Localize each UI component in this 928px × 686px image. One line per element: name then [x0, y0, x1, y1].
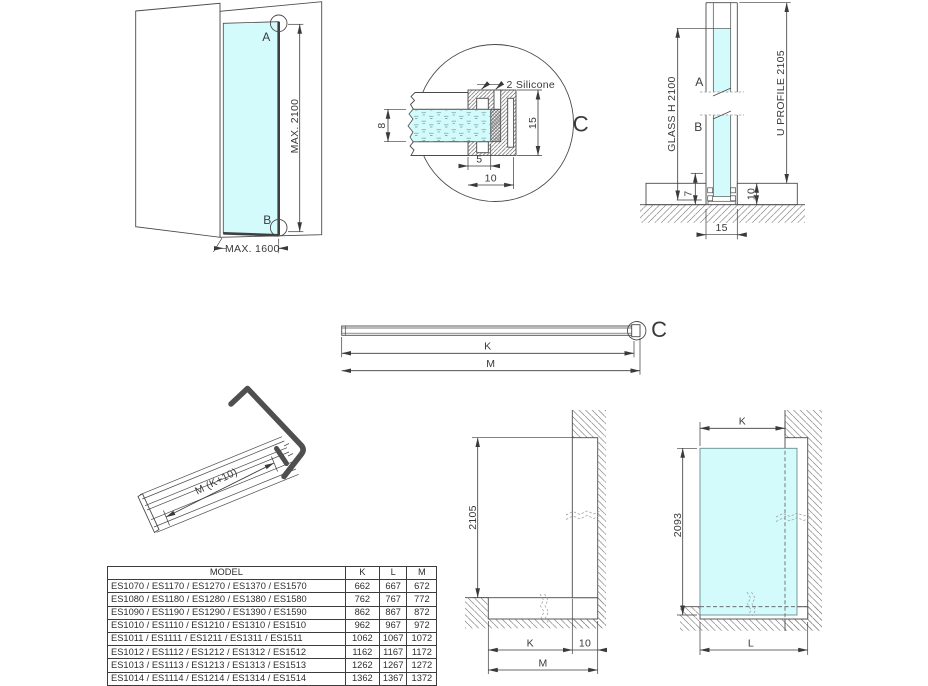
label-a: A	[695, 75, 703, 89]
m-cell: 872	[407, 606, 437, 619]
ext-line	[213, 238, 222, 252]
u-profile-label: U PROFILE 2105	[775, 50, 787, 136]
dim-10: 10	[746, 188, 758, 200]
table-row: ES1070 / ES1170 / ES1270 / ES1370 / ES15…	[108, 580, 437, 593]
dim-7: 7	[683, 190, 695, 196]
m-cell: 972	[407, 619, 437, 632]
detail-c-view: 8 15 5 10 2 Silicone C	[376, 45, 589, 202]
table-header-row: MODEL K L M	[108, 567, 437, 580]
bar-end-block	[632, 325, 640, 337]
k-cell: 662	[345, 580, 379, 593]
tempered-glass-marks	[408, 109, 491, 141]
table-row: ES1013 / ES1113 / ES1213 / ES1313 / ES15…	[108, 659, 437, 672]
dim-height: 2093	[672, 513, 684, 538]
floor-profile	[488, 598, 597, 619]
gasket	[731, 196, 736, 201]
k-cell: 962	[345, 619, 379, 632]
detail-letter: C	[651, 317, 667, 342]
dim-l: L	[748, 638, 754, 650]
model-cell: ES1090 / ES1190 / ES1290 / ES1390 / ES15…	[108, 606, 346, 619]
dim-inset: 5	[476, 154, 482, 166]
k-cell: 1062	[345, 632, 379, 645]
l-cell: 1367	[379, 672, 406, 685]
dim-m: M	[538, 658, 547, 670]
label-a: A	[262, 30, 270, 44]
silicone-label: 2 Silicone	[507, 79, 556, 91]
model-cell: ES1014 / ES1114 / ES1214 / ES1314 / ES15…	[108, 672, 346, 685]
corner-view: A B MAX. 2100 MAX. 1600	[136, 2, 322, 255]
dim-m: M	[486, 358, 495, 370]
dim-k: K	[527, 638, 534, 650]
silicone-gap	[494, 90, 501, 109]
col-header-model: MODEL	[108, 567, 346, 580]
col-header-m: M	[407, 567, 437, 580]
profile-cross-section-outline	[231, 389, 303, 477]
profile-bar	[342, 326, 640, 335]
wall-profile	[572, 438, 597, 598]
floor-block-left	[646, 183, 706, 204]
profile-end-face	[138, 494, 159, 533]
profile-channel	[508, 98, 514, 147]
gasket	[708, 196, 713, 201]
label-b: B	[263, 213, 271, 227]
leader-arrow	[496, 84, 501, 89]
glass-section-lower	[713, 115, 730, 197]
glass-panel-view: K 2093 L	[672, 410, 822, 655]
dim-k: K	[739, 416, 746, 428]
glass-height-label: GLASS H 2100	[666, 76, 678, 151]
profile-base	[708, 201, 735, 204]
left-wall	[136, 3, 220, 237]
model-cell: ES1011 / ES1111 / ES1211 / ES1311 / ES15…	[108, 632, 346, 645]
l-cell: 667	[379, 580, 406, 593]
dim-height: 2105	[467, 505, 479, 530]
l-cell: 1267	[379, 659, 406, 672]
l-cell: 1167	[379, 646, 406, 659]
k-cell: 862	[345, 606, 379, 619]
k-cell: 762	[345, 593, 379, 606]
floor-hatch	[640, 205, 805, 223]
model-cell: ES1012 / ES1112 / ES1212 / ES1312 / ES15…	[108, 646, 346, 659]
profile-3d-view: M (K+10)	[138, 389, 303, 533]
table-row: ES1090 / ES1190 / ES1290 / ES1390 / ES15…	[108, 606, 437, 619]
gasket-slot-top	[477, 98, 489, 109]
detail-letter: C	[573, 112, 589, 137]
m-cell: 672	[407, 580, 437, 593]
glass-panel	[700, 448, 797, 615]
l-cell: 767	[379, 593, 406, 606]
l-cell: 867	[379, 606, 406, 619]
k-cell: 1162	[345, 646, 379, 659]
dim-profile-height: 15	[527, 117, 539, 129]
model-cell: ES1010 / ES1110 / ES1210 / ES1310 / ES15…	[108, 619, 346, 632]
dim-glass-thickness: 8	[376, 122, 388, 128]
dim-depth: 10	[485, 173, 497, 185]
l-cell: 1067	[379, 632, 406, 645]
surface-band-bottom	[410, 142, 468, 156]
col-header-l: L	[379, 567, 406, 580]
dim-10: 10	[579, 638, 591, 650]
spec-table: MODEL K L M ES1070 / ES1170 / ES1270 / E…	[107, 566, 437, 686]
recess-section-view: 2105 K 10 M	[465, 410, 606, 674]
model-cell: ES1013 / ES1113 / ES1213 / ES1313 / ES15…	[108, 659, 346, 672]
col-header-k: K	[345, 567, 379, 580]
m-cell: 1172	[407, 646, 437, 659]
l-cell: 967	[379, 619, 406, 632]
k-cell: 1262	[345, 659, 379, 672]
dim-max-width: MAX. 1600	[225, 243, 280, 255]
silicone-section	[491, 109, 501, 141]
gasket	[731, 188, 736, 193]
floor-section-view: A B GLASS H 2100 U PROFILE 2105 7 10	[640, 3, 805, 240]
profile-cross-section-flange	[277, 449, 287, 464]
gasket-slot-bottom	[477, 142, 489, 153]
table-row: ES1011 / ES1111 / ES1211 / ES1311 / ES15…	[108, 632, 437, 645]
m-cell: 1372	[407, 672, 437, 685]
technical-drawing-sheet: A B MAX. 2100 MAX. 1600 8	[0, 0, 928, 686]
table-row: ES1010 / ES1110 / ES1210 / ES1310 / ES15…	[108, 619, 437, 632]
model-cell: ES1070 / ES1170 / ES1270 / ES1370 / ES15…	[108, 580, 346, 593]
table-row: ES1014 / ES1114 / ES1214 / ES1314 / ES15…	[108, 672, 437, 685]
profile-bar-view: C K M	[342, 317, 668, 375]
surface-band-top	[411, 93, 469, 110]
table-row: ES1012 / ES1112 / ES1212 / ES1312 / ES15…	[108, 646, 437, 659]
dim-k: K	[484, 341, 491, 353]
glass-section-upper	[713, 28, 730, 92]
m-cell: 1072	[407, 632, 437, 645]
k-cell: 1362	[345, 672, 379, 685]
m-cell: 1272	[407, 659, 437, 672]
dim-max-height: MAX. 2100	[289, 99, 301, 154]
label-b: B	[694, 120, 702, 134]
m-cell: 772	[407, 593, 437, 606]
model-cell: ES1080 / ES1180 / ES1280 / ES1380 / ES15…	[108, 593, 346, 606]
gasket	[708, 188, 713, 193]
dim-length-line	[166, 463, 274, 517]
leader-arrow	[482, 84, 488, 89]
glass-panel	[223, 22, 278, 236]
table-row: ES1080 / ES1180 / ES1280 / ES1380 / ES15…	[108, 593, 437, 606]
dim-15: 15	[716, 222, 728, 234]
